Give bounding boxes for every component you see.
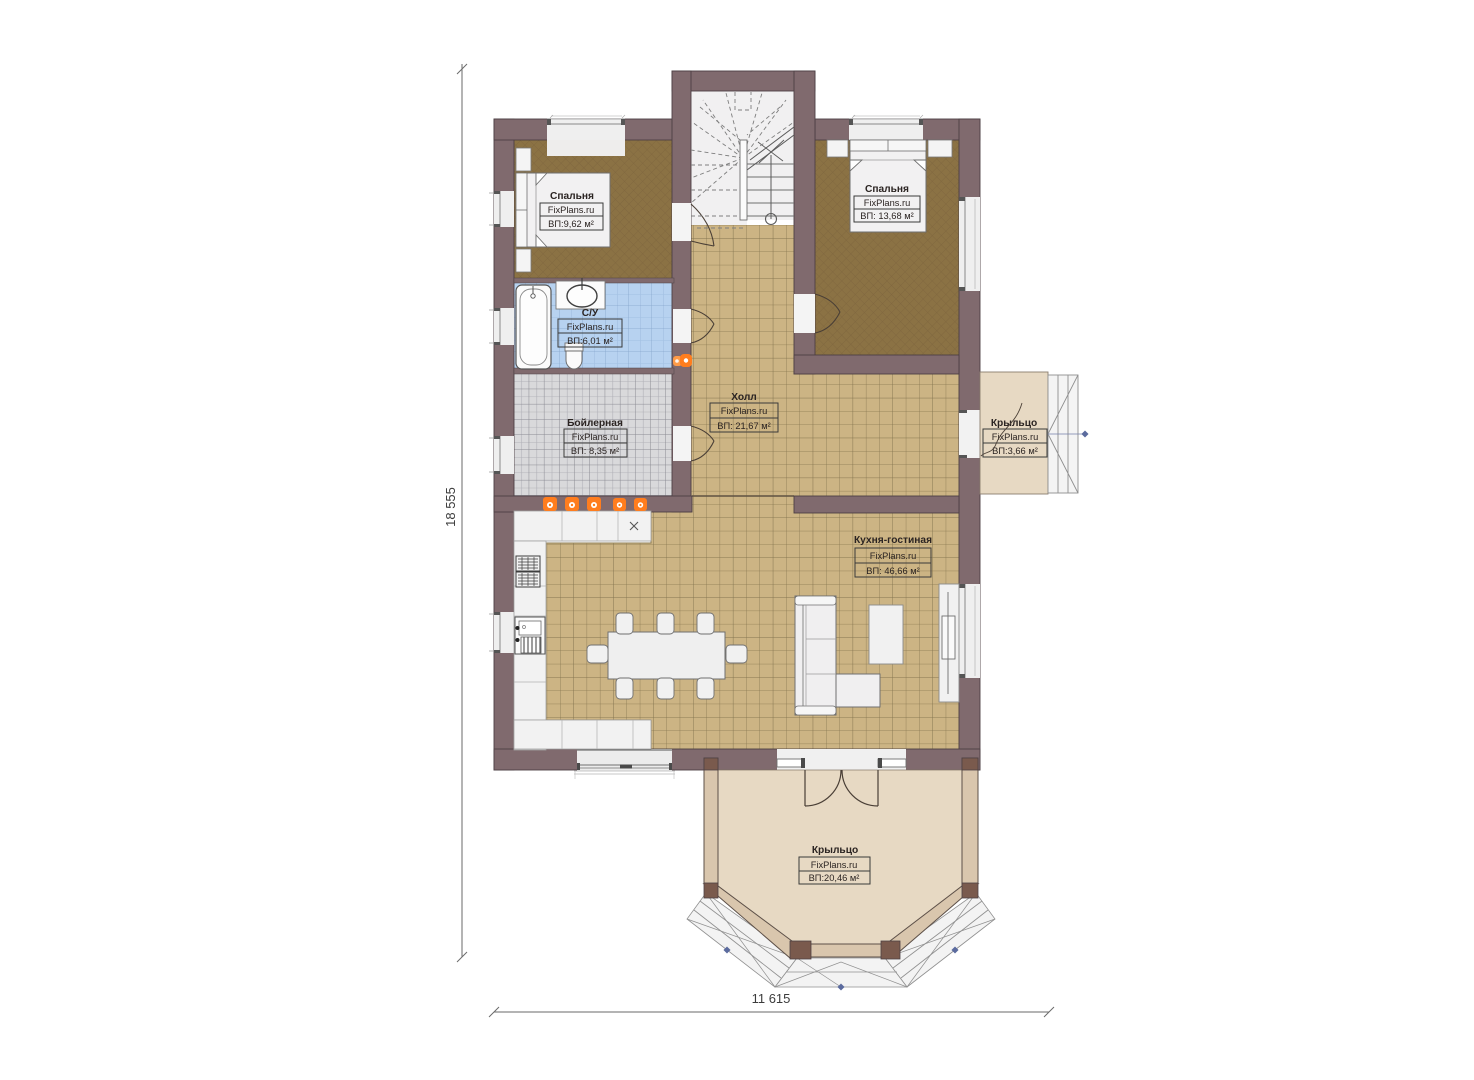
svg-text:ВП:20,46 м²: ВП:20,46 м²: [809, 873, 860, 883]
svg-text:ВП:6,01 м²: ВП:6,01 м²: [567, 336, 613, 346]
svg-text:ВП: 8,35 м²: ВП: 8,35 м²: [571, 446, 619, 456]
svg-text:FixPlans.ru: FixPlans.ru: [811, 860, 858, 870]
svg-text:ВП: 21,67 м²: ВП: 21,67 м²: [717, 421, 770, 431]
svg-text:ВП:9,62 м²: ВП:9,62 м²: [548, 219, 594, 229]
svg-text:FixPlans.ru: FixPlans.ru: [548, 205, 595, 215]
svg-text:Спальня: Спальня: [865, 184, 909, 195]
svg-text:FixPlans.ru: FixPlans.ru: [864, 198, 911, 208]
svg-text:11 615: 11 615: [752, 991, 791, 1006]
svg-text:FixPlans.ru: FixPlans.ru: [870, 551, 917, 561]
svg-text:ВП:3,66 м²: ВП:3,66 м²: [992, 446, 1038, 456]
svg-text:ВП: 13,68 м²: ВП: 13,68 м²: [860, 211, 913, 221]
svg-text:Кухня-гостиная: Кухня-гостиная: [854, 535, 932, 546]
svg-text:С/У: С/У: [582, 308, 599, 319]
svg-text:Холл: Холл: [731, 392, 757, 403]
svg-text:FixPlans.ru: FixPlans.ru: [567, 322, 614, 332]
svg-text:18 555: 18 555: [443, 487, 458, 527]
svg-text:FixPlans.ru: FixPlans.ru: [992, 432, 1039, 442]
svg-text:FixPlans.ru: FixPlans.ru: [721, 406, 768, 416]
svg-text:Спальня: Спальня: [550, 191, 594, 202]
svg-text:FixPlans.ru: FixPlans.ru: [572, 432, 619, 442]
svg-text:Крыльцо: Крыльцо: [812, 845, 858, 856]
svg-text:ВП: 46,66 м²: ВП: 46,66 м²: [866, 566, 919, 576]
svg-text:Бойлерная: Бойлерная: [567, 418, 623, 429]
